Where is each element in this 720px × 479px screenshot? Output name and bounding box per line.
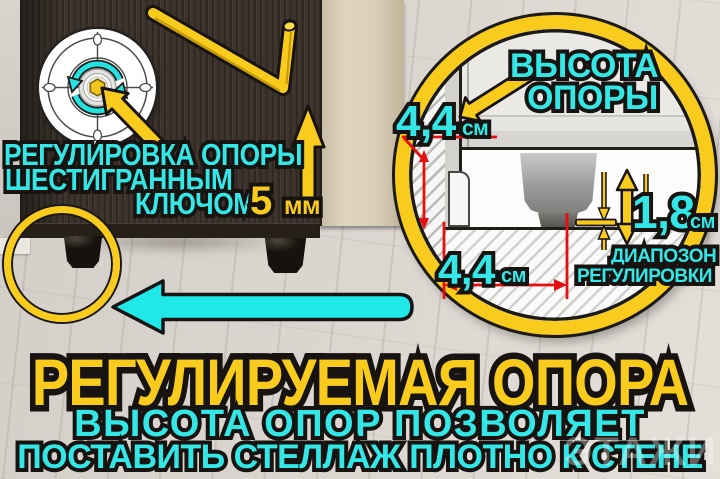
inset-range-label-1: ДИАПОЗОНДИАПОЗОН: [611, 247, 716, 266]
callout-adjust-line3: КЛЮЧОМКЛЮЧОМ: [135, 188, 255, 219]
inset-range-label-2: РЕГУЛИРОВКИРЕГУЛИРОВКИ: [577, 267, 712, 286]
foot-bottom-view-drawing: [39, 29, 156, 146]
inset-dim-side-unit: смсм: [462, 118, 488, 139]
inset-range-value: 1,81,8: [632, 189, 694, 235]
highlight-circle: [4, 206, 120, 322]
inset-dim-bottom-value: 4,44,4: [438, 249, 495, 291]
inset-dim-bottom-unit: смсм: [501, 266, 526, 286]
hex-size-unit: мммм: [284, 194, 320, 219]
inset-height-label-2: ОПОРЫОПОРЫ: [527, 81, 658, 115]
watermark: ЭТАЖИ: [564, 430, 718, 475]
hex-socket-icon: [90, 79, 104, 96]
inset-dim-side-value: 4,44,4: [396, 100, 456, 144]
cabinet-foot-right: [264, 238, 307, 273]
light-cabinet-side-panel: [320, 0, 404, 226]
foot-bottom-view-inset: [39, 29, 156, 146]
hex-size-value: 55: [250, 181, 272, 221]
plinth-section: [448, 171, 470, 227]
inset-height-label-1: ВЫСОТАВЫСОТА: [510, 49, 658, 83]
adjustable-foot-drawing: [520, 153, 597, 213]
product-infographic: РЕГУЛИРОВКА ОПОРЫРЕГУЛИРОВКА ОПОРЫ ШЕСТИ…: [0, 0, 720, 479]
foot-base-plate: [538, 213, 578, 227]
wall-corner: [0, 0, 22, 252]
inset-range-unit: смсм: [690, 212, 715, 232]
